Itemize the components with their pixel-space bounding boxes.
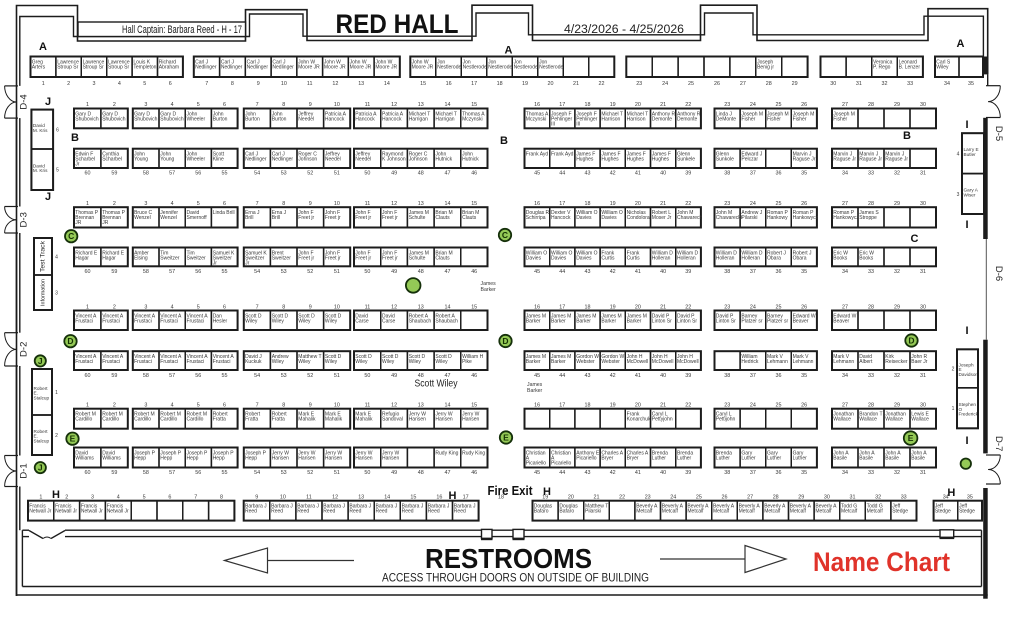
svg-text:Stedge: Stedge xyxy=(935,509,951,515)
svg-text:Nestlerode: Nestlerode xyxy=(488,64,512,70)
svg-text:23: 23 xyxy=(724,102,730,108)
svg-text:Williams: Williams xyxy=(75,455,94,461)
svg-text:Hutnick: Hutnick xyxy=(462,157,479,163)
svg-text:51: 51 xyxy=(334,269,340,275)
svg-text:2: 2 xyxy=(113,304,116,310)
svg-text:21: 21 xyxy=(594,494,600,500)
svg-text:10: 10 xyxy=(334,403,340,409)
svg-text:22: 22 xyxy=(619,494,625,500)
svg-text:25: 25 xyxy=(776,201,782,207)
svg-text:Reed: Reed xyxy=(323,509,335,515)
svg-text:Frederick: Frederick xyxy=(959,412,979,417)
svg-text:46: 46 xyxy=(471,373,477,379)
svg-text:Raguse Jr: Raguse Jr xyxy=(833,157,856,163)
svg-text:Hancock: Hancock xyxy=(325,116,345,122)
svg-text:23: 23 xyxy=(724,403,730,409)
svg-text:15: 15 xyxy=(471,403,477,409)
svg-text:27: 27 xyxy=(842,102,848,108)
svg-text:41: 41 xyxy=(635,470,641,476)
svg-text:36: 36 xyxy=(776,171,782,177)
svg-text:35: 35 xyxy=(801,171,807,177)
svg-text:Condolora: Condolora xyxy=(627,215,650,221)
svg-text:Barker: Barker xyxy=(551,318,566,324)
svg-text:Barker: Barker xyxy=(526,318,541,324)
svg-text:Beaver: Beaver xyxy=(833,318,849,324)
svg-text:Metcalf: Metcalf xyxy=(739,509,756,515)
svg-text:Obara: Obara xyxy=(767,255,781,261)
svg-text:60: 60 xyxy=(85,373,91,379)
svg-text:H: H xyxy=(449,490,457,502)
svg-text:RED HALL: RED HALL xyxy=(336,9,459,39)
svg-text:56: 56 xyxy=(195,373,201,379)
svg-text:Pelczar: Pelczar xyxy=(741,157,758,163)
svg-text:13: 13 xyxy=(358,81,364,87)
svg-text:20: 20 xyxy=(568,494,574,500)
svg-text:Fratta: Fratta xyxy=(245,417,258,423)
svg-text:Nestlerode: Nestlerode xyxy=(437,64,461,70)
svg-text:11: 11 xyxy=(365,102,371,108)
svg-text:38: 38 xyxy=(724,171,730,177)
svg-text:Brill: Brill xyxy=(272,215,280,221)
svg-text:Wheeler: Wheeler xyxy=(187,157,206,163)
svg-text:44: 44 xyxy=(559,269,565,275)
svg-text:7: 7 xyxy=(256,102,259,108)
svg-text:Hughes: Hughes xyxy=(627,157,645,163)
svg-text:4: 4 xyxy=(171,304,174,310)
svg-text:10: 10 xyxy=(334,201,340,207)
svg-text:Wiley: Wiley xyxy=(409,359,422,365)
svg-text:37: 37 xyxy=(750,269,756,275)
svg-text:Johnson: Johnson xyxy=(298,157,317,163)
svg-text:20: 20 xyxy=(635,201,641,207)
svg-text:Hagar: Hagar xyxy=(102,255,116,261)
svg-text:Hepp: Hepp xyxy=(160,455,172,461)
svg-text:D-5: D-5 xyxy=(993,126,1004,141)
svg-text:Davies: Davies xyxy=(551,255,567,261)
svg-text:59: 59 xyxy=(111,269,117,275)
svg-text:Cardillo: Cardillo xyxy=(160,417,177,423)
svg-text:Mahalik: Mahalik xyxy=(355,417,373,423)
svg-text:33: 33 xyxy=(868,373,874,379)
svg-text:Wallace: Wallace xyxy=(885,417,903,423)
svg-text:Needel: Needel xyxy=(298,116,314,122)
svg-text:33: 33 xyxy=(907,81,913,87)
svg-text:32: 32 xyxy=(894,269,900,275)
svg-text:12: 12 xyxy=(391,102,397,108)
svg-text:9: 9 xyxy=(309,201,312,207)
svg-text:26: 26 xyxy=(801,403,807,409)
svg-text:7: 7 xyxy=(256,304,259,310)
svg-text:29: 29 xyxy=(894,403,900,409)
svg-text:Curtis: Curtis xyxy=(627,255,641,261)
svg-text:Holleran: Holleran xyxy=(677,255,696,261)
svg-text:Demonte: Demonte xyxy=(677,116,698,122)
svg-text:2: 2 xyxy=(65,494,68,500)
svg-text:15: 15 xyxy=(420,81,426,87)
svg-text:53: 53 xyxy=(281,470,287,476)
svg-text:McDowell: McDowell xyxy=(677,359,699,365)
svg-text:31: 31 xyxy=(920,470,926,476)
svg-text:9: 9 xyxy=(257,81,260,87)
svg-text:8: 8 xyxy=(220,494,223,500)
svg-text:58: 58 xyxy=(143,269,149,275)
svg-text:59: 59 xyxy=(111,171,117,177)
svg-text:30: 30 xyxy=(830,81,836,87)
svg-text:25: 25 xyxy=(776,403,782,409)
svg-text:11: 11 xyxy=(306,494,312,500)
svg-text:3: 3 xyxy=(144,304,147,310)
svg-text:Luther: Luther xyxy=(652,455,667,461)
svg-text:21: 21 xyxy=(660,201,666,207)
svg-text:46: 46 xyxy=(471,269,477,275)
svg-text:35: 35 xyxy=(801,373,807,379)
svg-text:Metcalf: Metcalf xyxy=(867,509,884,515)
svg-text:32: 32 xyxy=(894,470,900,476)
svg-text:1: 1 xyxy=(55,390,58,396)
svg-text:Fisher: Fisher xyxy=(833,116,847,122)
svg-text:14: 14 xyxy=(445,403,451,409)
svg-text:2: 2 xyxy=(952,367,955,373)
svg-text:18: 18 xyxy=(585,102,591,108)
svg-text:Pettyjohn: Pettyjohn xyxy=(652,417,673,423)
svg-text:55: 55 xyxy=(222,373,228,379)
svg-text:1: 1 xyxy=(86,201,89,207)
svg-text:Albert: Albert xyxy=(859,359,873,365)
svg-text:Hughes: Hughes xyxy=(601,157,619,163)
svg-text:E: E xyxy=(503,432,509,442)
svg-text:Freet jr: Freet jr xyxy=(355,255,371,261)
svg-text:13: 13 xyxy=(418,403,424,409)
svg-text:Metcalf: Metcalf xyxy=(815,509,832,515)
svg-text:Shubovich: Shubovich xyxy=(102,116,126,122)
svg-text:J: J xyxy=(45,191,51,203)
svg-text:17: 17 xyxy=(559,201,565,207)
svg-text:I: I xyxy=(965,435,968,447)
svg-text:35: 35 xyxy=(801,269,807,275)
svg-text:57: 57 xyxy=(169,373,175,379)
svg-text:49: 49 xyxy=(391,269,397,275)
svg-text:Cardillo: Cardillo xyxy=(102,417,119,423)
svg-text:5: 5 xyxy=(56,168,59,174)
svg-text:29: 29 xyxy=(894,304,900,310)
svg-text:13: 13 xyxy=(358,494,364,500)
svg-text:Luther: Luther xyxy=(767,455,782,461)
svg-text:Hansen: Hansen xyxy=(355,455,372,461)
svg-text:60: 60 xyxy=(85,470,91,476)
svg-text:50: 50 xyxy=(364,373,370,379)
svg-text:43: 43 xyxy=(585,269,591,275)
svg-text:Stalcup: Stalcup xyxy=(34,439,50,444)
svg-text:Hepp: Hepp xyxy=(213,455,225,461)
svg-text:Moore JR: Moore JR xyxy=(324,64,346,70)
svg-text:23: 23 xyxy=(724,201,730,207)
svg-text:E: E xyxy=(908,433,914,443)
svg-text:28: 28 xyxy=(773,494,779,500)
svg-text:Templeton: Templeton xyxy=(133,64,156,70)
svg-text:30: 30 xyxy=(920,102,926,108)
svg-text:H: H xyxy=(947,487,955,499)
svg-text:48: 48 xyxy=(418,171,424,177)
svg-text:52: 52 xyxy=(307,171,313,177)
svg-text:K Johnson: K Johnson xyxy=(382,157,406,163)
svg-text:47: 47 xyxy=(445,470,451,476)
svg-text:Hughes: Hughes xyxy=(576,157,594,163)
svg-text:D-6: D-6 xyxy=(993,266,1004,281)
svg-text:Pettijohn: Pettijohn xyxy=(716,417,736,423)
svg-text:B: B xyxy=(903,130,911,142)
svg-text:25: 25 xyxy=(776,304,782,310)
svg-text:39: 39 xyxy=(685,470,691,476)
svg-text:1: 1 xyxy=(42,81,45,87)
svg-text:A: A xyxy=(39,41,47,53)
svg-text:16: 16 xyxy=(436,494,442,500)
svg-text:Basile: Basile xyxy=(833,455,847,461)
svg-text:Hancock: Hancock xyxy=(551,215,571,221)
svg-text:31: 31 xyxy=(920,269,926,275)
svg-text:Freet jr: Freet jr xyxy=(355,215,371,221)
svg-text:2: 2 xyxy=(113,201,116,207)
svg-text:56: 56 xyxy=(195,171,201,177)
svg-text:Reed: Reed xyxy=(297,509,309,515)
svg-text:36: 36 xyxy=(776,470,782,476)
svg-text:54: 54 xyxy=(254,269,260,275)
svg-text:Needel: Needel xyxy=(325,157,341,163)
svg-text:Hepp: Hepp xyxy=(134,455,146,461)
svg-text:24: 24 xyxy=(750,304,756,310)
svg-text:Lehmann: Lehmann xyxy=(767,359,788,365)
svg-text:Carse: Carse xyxy=(382,318,396,324)
svg-text:Frustaci: Frustaci xyxy=(160,359,178,365)
svg-text:Wiley: Wiley xyxy=(325,359,338,365)
svg-text:22: 22 xyxy=(685,102,691,108)
svg-text:60: 60 xyxy=(85,171,91,177)
svg-text:Hansen: Hansen xyxy=(272,455,289,461)
svg-text:Raguse Jr: Raguse Jr xyxy=(793,157,816,163)
svg-text:Hansen: Hansen xyxy=(409,417,426,423)
svg-text:22: 22 xyxy=(685,201,691,207)
svg-text:37: 37 xyxy=(750,470,756,476)
svg-text:Wiley: Wiley xyxy=(245,318,258,324)
svg-text:20: 20 xyxy=(635,102,641,108)
svg-text:18: 18 xyxy=(585,304,591,310)
svg-text:19: 19 xyxy=(610,102,616,108)
svg-text:27: 27 xyxy=(842,304,848,310)
svg-text:Davies: Davies xyxy=(526,255,542,261)
svg-text:Wiley: Wiley xyxy=(435,359,448,365)
svg-text:D-4: D-4 xyxy=(19,94,30,109)
svg-text:Frustaci: Frustaci xyxy=(160,318,178,324)
svg-text:26: 26 xyxy=(801,201,807,207)
svg-text:24: 24 xyxy=(750,201,756,207)
svg-text:31: 31 xyxy=(850,494,856,500)
svg-text:Test Track: Test Track xyxy=(40,240,47,272)
svg-text:39: 39 xyxy=(685,171,691,177)
svg-text:55: 55 xyxy=(222,171,228,177)
svg-text:26: 26 xyxy=(801,102,807,108)
svg-text:15: 15 xyxy=(471,304,477,310)
svg-text:Books: Books xyxy=(833,255,847,261)
svg-text:Burton: Burton xyxy=(272,116,287,122)
svg-text:50: 50 xyxy=(364,171,370,177)
svg-text:Obara: Obara xyxy=(793,255,807,261)
svg-text:Freet jr: Freet jr xyxy=(298,255,314,261)
svg-text:45: 45 xyxy=(534,269,540,275)
svg-text:27: 27 xyxy=(842,403,848,409)
svg-text:11: 11 xyxy=(365,403,371,409)
svg-text:H: H xyxy=(543,486,551,498)
svg-text:I: I xyxy=(965,219,968,231)
svg-text:Frustaci: Frustaci xyxy=(187,318,205,324)
svg-text:27: 27 xyxy=(842,201,848,207)
svg-text:31: 31 xyxy=(856,81,862,87)
svg-text:57: 57 xyxy=(169,269,175,275)
svg-text:43: 43 xyxy=(585,171,591,177)
svg-text:Chawarech: Chawarech xyxy=(677,215,703,221)
svg-text:36: 36 xyxy=(776,373,782,379)
svg-text:5: 5 xyxy=(143,81,146,87)
svg-text:24: 24 xyxy=(662,81,668,87)
svg-text:7: 7 xyxy=(256,201,259,207)
svg-text:James: James xyxy=(481,281,497,287)
svg-text:Bryer: Bryer xyxy=(601,455,613,461)
svg-text:3: 3 xyxy=(144,403,147,409)
svg-text:1: 1 xyxy=(86,102,89,108)
svg-text:30: 30 xyxy=(920,403,926,409)
svg-text:Cardillo: Cardillo xyxy=(75,417,92,423)
svg-text:15: 15 xyxy=(471,201,477,207)
svg-text:35: 35 xyxy=(801,470,807,476)
svg-text:C: C xyxy=(502,230,508,240)
svg-text:54: 54 xyxy=(254,470,260,476)
svg-text:M. Kris: M. Kris xyxy=(33,168,48,173)
svg-text:Konarchuk: Konarchuk xyxy=(627,417,651,423)
svg-text:I: I xyxy=(965,325,968,337)
svg-text:Williams: Williams xyxy=(102,455,121,461)
svg-text:53: 53 xyxy=(281,373,287,379)
svg-text:Linton Sr: Linton Sr xyxy=(677,318,697,324)
svg-text:12: 12 xyxy=(391,201,397,207)
svg-text:Kline: Kline xyxy=(213,157,224,163)
svg-text:39: 39 xyxy=(685,373,691,379)
svg-text:Frank Ayd: Frank Ayd xyxy=(551,152,574,158)
svg-text:40: 40 xyxy=(660,373,666,379)
svg-text:Stedge: Stedge xyxy=(892,509,908,515)
svg-text:23: 23 xyxy=(645,494,651,500)
svg-text:P. Rego: P. Rego xyxy=(873,64,891,70)
svg-text:33: 33 xyxy=(901,494,907,500)
svg-text:23: 23 xyxy=(724,304,730,310)
svg-text:Sunkole: Sunkole xyxy=(716,157,734,163)
svg-text:Nestlerode: Nestlerode xyxy=(463,64,487,70)
svg-text:30: 30 xyxy=(824,494,830,500)
svg-text:Freet jr: Freet jr xyxy=(382,215,398,221)
svg-text:Hesler: Hesler xyxy=(213,318,228,324)
svg-text:9: 9 xyxy=(309,304,312,310)
svg-text:4: 4 xyxy=(117,494,120,500)
svg-text:ACCESS THROUGH DOORS ON OUTSID: ACCESS THROUGH DOORS ON OUTSIDE OF BUILD… xyxy=(382,573,649,585)
svg-text:Moore JR: Moore JR xyxy=(412,64,434,70)
svg-text:52: 52 xyxy=(307,269,313,275)
svg-text:JR: JR xyxy=(75,220,82,226)
svg-text:Holleran: Holleran xyxy=(716,255,735,261)
svg-text:3: 3 xyxy=(93,81,96,87)
svg-text:41: 41 xyxy=(635,269,641,275)
svg-text:26: 26 xyxy=(714,81,720,87)
svg-text:23: 23 xyxy=(636,81,642,87)
svg-text:11: 11 xyxy=(307,81,313,87)
svg-text:Stroup Sr: Stroup Sr xyxy=(57,64,78,70)
svg-text:Hepp: Hepp xyxy=(187,455,199,461)
svg-text:42: 42 xyxy=(610,470,616,476)
svg-text:D: D xyxy=(502,336,508,346)
svg-text:Wiley: Wiley xyxy=(272,318,285,324)
svg-text:Harrigan: Harrigan xyxy=(435,116,454,122)
svg-text:J: J xyxy=(38,463,43,473)
svg-text:Luther: Luther xyxy=(716,455,731,461)
svg-text:54: 54 xyxy=(254,373,260,379)
svg-text:Young: Young xyxy=(160,157,174,163)
svg-text:Freet jr: Freet jr xyxy=(325,255,341,261)
svg-text:21: 21 xyxy=(660,102,666,108)
svg-text:Netwall Jr: Netwall Jr xyxy=(55,509,77,515)
svg-text:Wiser: Wiser xyxy=(964,193,976,198)
svg-text:Stalcup: Stalcup xyxy=(34,396,50,401)
svg-text:4: 4 xyxy=(171,102,174,108)
svg-text:51: 51 xyxy=(334,470,340,476)
svg-text:34: 34 xyxy=(842,171,848,177)
svg-text:RESTROOMS: RESTROOMS xyxy=(425,543,592,574)
svg-text:Raguse Jr: Raguse Jr xyxy=(859,157,882,163)
svg-text:Platzer sr: Platzer sr xyxy=(767,318,788,324)
svg-text:B. Lenzer: B. Lenzer xyxy=(899,64,921,70)
svg-text:38: 38 xyxy=(724,269,730,275)
svg-text:Beaver: Beaver xyxy=(793,318,809,324)
svg-text:Smernoff: Smernoff xyxy=(187,215,208,221)
svg-text:Webster: Webster xyxy=(576,359,595,365)
svg-text:22: 22 xyxy=(599,81,605,87)
svg-text:Davidson: Davidson xyxy=(959,372,979,377)
svg-text:McDowell: McDowell xyxy=(652,359,674,365)
svg-text:Raguse Jr: Raguse Jr xyxy=(885,157,908,163)
svg-text:Frustaci: Frustaci xyxy=(75,359,93,365)
svg-text:Frustaci: Frustaci xyxy=(134,359,152,365)
svg-text:Luther: Luther xyxy=(677,455,692,461)
svg-text:Fratta: Fratta xyxy=(213,417,226,423)
svg-text:2: 2 xyxy=(113,102,116,108)
svg-text:34: 34 xyxy=(842,269,848,275)
svg-text:10: 10 xyxy=(334,304,340,310)
svg-text:53: 53 xyxy=(281,171,287,177)
svg-text:14: 14 xyxy=(445,304,451,310)
svg-text:Harrison: Harrison xyxy=(601,116,620,122)
svg-text:27: 27 xyxy=(747,494,753,500)
svg-text:Schulte: Schulte xyxy=(409,255,426,261)
svg-text:Davies: Davies xyxy=(576,255,592,261)
svg-text:Barker: Barker xyxy=(551,359,566,365)
svg-text:32: 32 xyxy=(882,81,888,87)
svg-text:43: 43 xyxy=(585,470,591,476)
svg-text:Barker: Barker xyxy=(527,388,543,394)
svg-text:Shaubach: Shaubach xyxy=(409,318,432,324)
svg-text:3: 3 xyxy=(55,291,58,297)
svg-text:III: III xyxy=(576,121,580,127)
svg-text:34: 34 xyxy=(842,470,848,476)
svg-text:Fisher: Fisher xyxy=(741,116,755,122)
svg-text:29: 29 xyxy=(798,494,804,500)
svg-text:58: 58 xyxy=(143,171,149,177)
svg-text:Bafaro: Bafaro xyxy=(559,509,574,515)
svg-text:Metcalf: Metcalf xyxy=(662,509,679,515)
